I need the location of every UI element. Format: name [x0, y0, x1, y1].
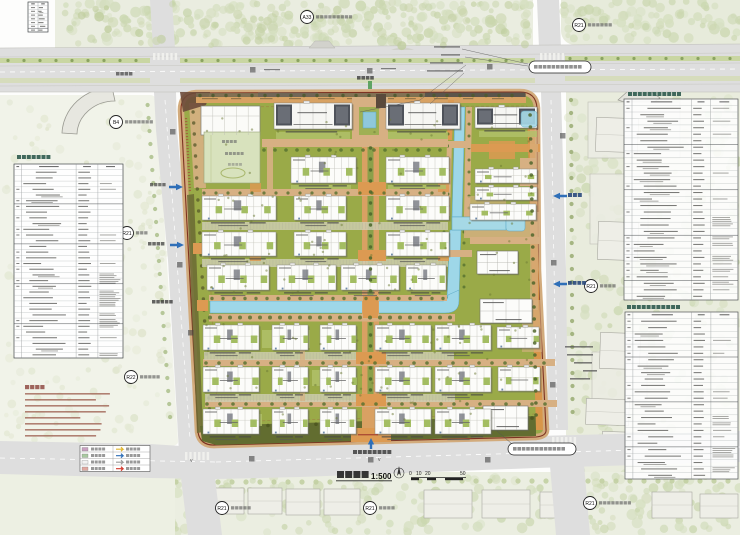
svg-text:0: 0: [409, 471, 412, 477]
svg-text:1:500: 1:500: [371, 472, 392, 481]
svg-text:R22: R22: [126, 375, 135, 381]
svg-text:A33: A33: [303, 15, 312, 21]
svg-text:B4: B4: [113, 120, 119, 126]
svg-text:R21: R21: [585, 501, 594, 507]
svg-text:R21: R21: [217, 506, 226, 512]
svg-text:50: 50: [460, 471, 466, 477]
svg-text:R21: R21: [365, 506, 374, 512]
svg-text:10: 10: [416, 471, 422, 477]
svg-text:20: 20: [425, 471, 431, 477]
svg-text:R21: R21: [574, 23, 583, 29]
svg-text:R21: R21: [586, 284, 595, 290]
svg-text:R21: R21: [122, 231, 131, 237]
